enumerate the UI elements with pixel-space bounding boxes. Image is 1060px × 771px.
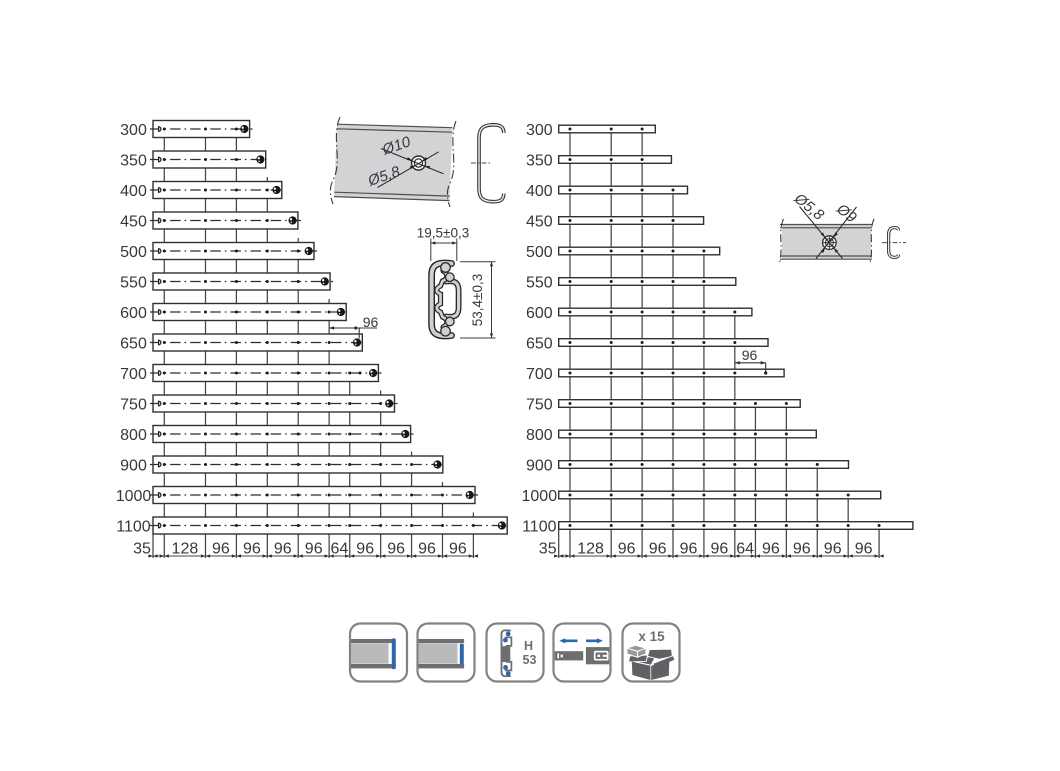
svg-text:800: 800 bbox=[120, 427, 147, 444]
svg-text:1100: 1100 bbox=[522, 519, 557, 536]
svg-text:96: 96 bbox=[711, 541, 729, 558]
svg-text:500: 500 bbox=[120, 244, 147, 261]
svg-text:750: 750 bbox=[526, 397, 553, 414]
svg-text:96: 96 bbox=[824, 541, 842, 558]
svg-text:500: 500 bbox=[526, 244, 553, 261]
svg-text:96: 96 bbox=[618, 541, 636, 558]
svg-text:900: 900 bbox=[120, 458, 147, 475]
svg-text:650: 650 bbox=[526, 336, 553, 353]
svg-text:300: 300 bbox=[526, 122, 553, 139]
svg-text:96: 96 bbox=[305, 541, 323, 558]
svg-text:96: 96 bbox=[793, 541, 811, 558]
svg-text:128: 128 bbox=[172, 541, 199, 558]
svg-text:53: 53 bbox=[523, 653, 537, 667]
svg-text:700: 700 bbox=[526, 366, 553, 383]
svg-text:750: 750 bbox=[120, 397, 147, 414]
svg-text:1000: 1000 bbox=[522, 488, 558, 505]
svg-text:1000: 1000 bbox=[116, 488, 152, 505]
svg-text:96: 96 bbox=[680, 541, 698, 558]
svg-text:96: 96 bbox=[449, 541, 467, 558]
svg-text:450: 450 bbox=[526, 214, 553, 231]
svg-text:350: 350 bbox=[120, 153, 147, 170]
svg-text:96: 96 bbox=[243, 541, 261, 558]
svg-text:96: 96 bbox=[762, 541, 780, 558]
svg-text:96: 96 bbox=[212, 541, 230, 558]
svg-text:35: 35 bbox=[539, 541, 557, 558]
svg-text:300: 300 bbox=[120, 122, 147, 139]
svg-text:800: 800 bbox=[526, 427, 553, 444]
svg-text:64: 64 bbox=[331, 541, 349, 558]
svg-text:35: 35 bbox=[133, 541, 151, 558]
svg-text:400: 400 bbox=[120, 183, 147, 200]
svg-text:64: 64 bbox=[736, 541, 754, 558]
svg-text:700: 700 bbox=[120, 366, 147, 383]
svg-text:128: 128 bbox=[577, 541, 604, 558]
svg-text:96: 96 bbox=[274, 541, 292, 558]
svg-text:96: 96 bbox=[387, 541, 405, 558]
svg-text:x 15: x 15 bbox=[638, 629, 665, 644]
svg-text:550: 550 bbox=[120, 275, 147, 292]
svg-text:19,5±0,3: 19,5±0,3 bbox=[417, 226, 469, 241]
svg-text:96: 96 bbox=[418, 541, 436, 558]
svg-text:350: 350 bbox=[526, 153, 553, 170]
svg-text:450: 450 bbox=[120, 214, 147, 231]
svg-text:96: 96 bbox=[742, 347, 758, 363]
svg-text:96: 96 bbox=[855, 541, 873, 558]
svg-text:400: 400 bbox=[526, 183, 553, 200]
svg-text:96: 96 bbox=[356, 541, 374, 558]
svg-text:96: 96 bbox=[649, 541, 667, 558]
svg-text:900: 900 bbox=[526, 458, 553, 475]
svg-text:1100: 1100 bbox=[116, 519, 151, 536]
svg-text:550: 550 bbox=[526, 275, 553, 292]
svg-text:600: 600 bbox=[526, 305, 553, 322]
svg-text:53,4±0,3: 53,4±0,3 bbox=[470, 274, 485, 326]
svg-text:H: H bbox=[524, 639, 533, 653]
svg-text:650: 650 bbox=[120, 336, 147, 353]
svg-text:600: 600 bbox=[120, 305, 147, 322]
svg-text:96: 96 bbox=[363, 314, 379, 330]
